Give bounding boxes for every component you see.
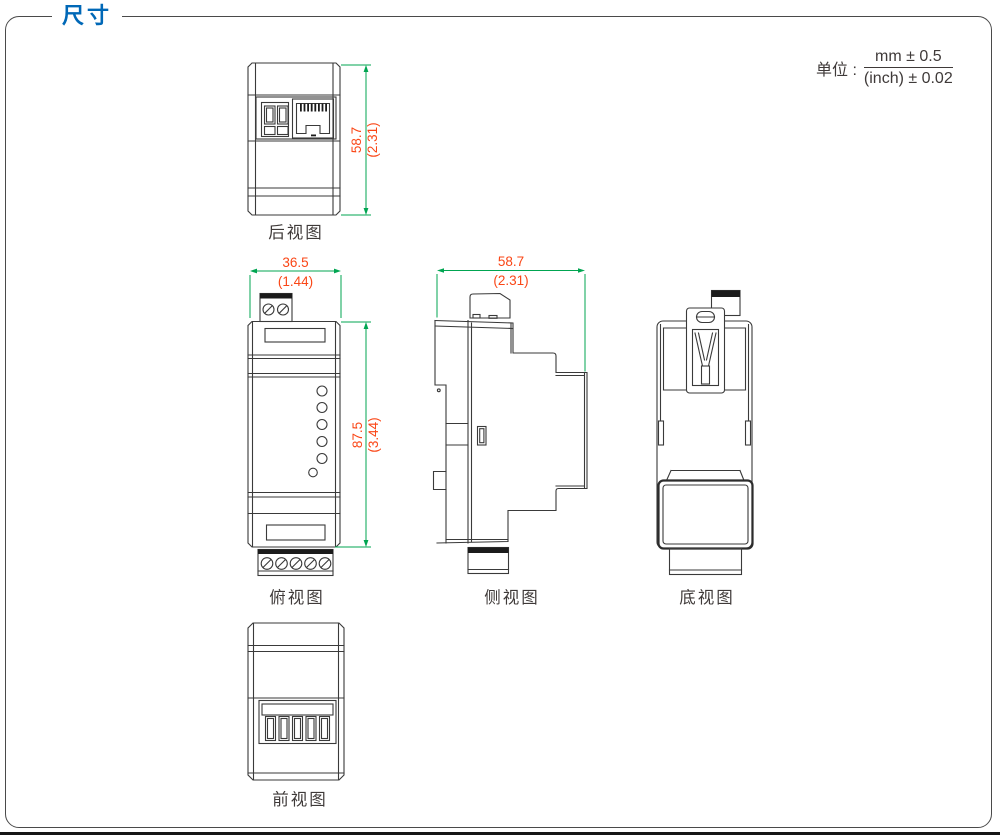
side-slot-detail (478, 427, 487, 446)
top-screw-terminal-2p (260, 294, 292, 322)
top-dim-height-mm: 87.5 (350, 422, 365, 448)
side-dim-mm: 58.7 (498, 254, 524, 269)
din-rail-clip-side (434, 321, 469, 544)
bottom-view-label: 底视图 (679, 588, 735, 607)
side-width-dimension: 58.7 (2.31) (437, 254, 585, 372)
top-dim-width-inch: (1.44) (278, 274, 313, 289)
top-view-label: 俯视图 (269, 588, 325, 607)
bottom-view-drawing: 底视图 (657, 291, 753, 608)
din-rail-clip-bottom (687, 308, 725, 393)
top-width-dimension: 36.5 (1.44) (250, 255, 341, 318)
dimension-drawing-page: 尺寸 单位 : mm ± 0.5 (inch) ± 0.02 (0, 0, 1000, 840)
top-dim-height-inch: (3.44) (366, 417, 381, 452)
bottom-terminal-block (670, 549, 742, 575)
top-view-drawing: 36.5 (1.44) 87.5 (3.44) 俯视图 (248, 255, 381, 607)
front-terminal-panel (259, 701, 336, 744)
rear-dim-inch: (2.31) (365, 122, 380, 157)
technical-drawing-canvas: 58.7 (2.31) 后视图 (0, 0, 1000, 840)
side-view-label: 侧视图 (484, 588, 540, 607)
rear-height-dimension: 58.7 (2.31) (341, 65, 380, 215)
terminal-block-2p (262, 103, 289, 137)
side-bottom-terminal (468, 548, 509, 574)
bottom-screw-terminal-5p (258, 550, 333, 576)
side-dim-inch: (2.31) (493, 273, 528, 288)
top-dim-width-mm: 36.5 (282, 255, 308, 270)
rj45-port (293, 99, 334, 138)
front-view-label: 前视图 (272, 790, 328, 809)
led-indicators (309, 386, 327, 477)
front-view-drawing: 前视图 (248, 623, 344, 809)
terminal-cover (659, 481, 753, 549)
side-top-terminal (470, 294, 510, 319)
rear-view-label: 后视图 (268, 223, 324, 242)
top-height-dimension: 87.5 (3.44) (335, 322, 381, 547)
rear-dim-mm: 58.7 (349, 127, 364, 153)
side-view-drawing: 58.7 (2.31) 侧视图 (434, 254, 588, 607)
rear-view-drawing: 58.7 (2.31) 后视图 (248, 63, 380, 242)
